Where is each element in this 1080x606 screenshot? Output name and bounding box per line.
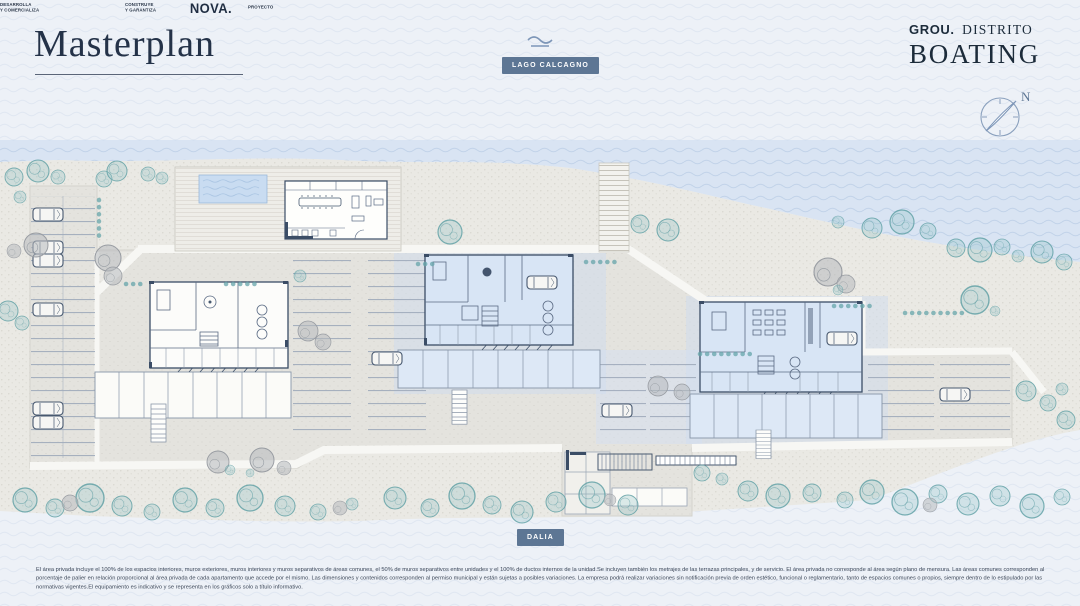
title-underline [35, 74, 243, 75]
brand-distrito: DISTRITO [962, 22, 1033, 38]
building-east[interactable] [690, 301, 882, 459]
car-garage-center [527, 276, 557, 289]
compass-north-label: N [1021, 89, 1031, 104]
masterplan-page: { "header": { "title": "Masterplan", "la… [0, 0, 1080, 606]
clubhouse [285, 181, 387, 239]
page-title: Masterplan [34, 22, 215, 66]
brand-grou: GROU. [909, 22, 955, 37]
pool [199, 175, 267, 203]
wave-icon [525, 34, 555, 55]
lake-badge: LAGO CALCAGNO [502, 57, 599, 74]
brand-boating: BOATING [909, 39, 1033, 70]
street-badge: DALIA [517, 529, 564, 546]
compass-icon: N [973, 86, 1037, 149]
boardwalk [599, 163, 629, 252]
car-garage-east [827, 332, 857, 345]
site-plan [0, 0, 1080, 606]
legal-disclaimer: El área privada incluye el 100% de los e… [36, 565, 1049, 591]
brand-logo: GROU. DISTRITO BOATING [909, 22, 1033, 70]
nova-logo: NOVA. [190, 0, 232, 16]
